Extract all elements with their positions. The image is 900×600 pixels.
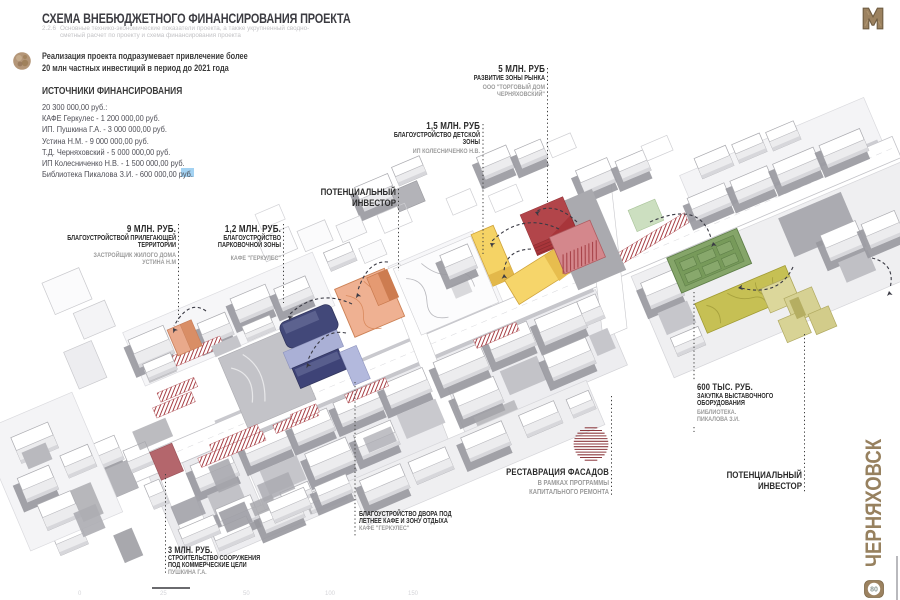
svg-text:ЧЕРНЯХОВСК: ЧЕРНЯХОВСК — [861, 439, 886, 567]
svg-text:80: 80 — [870, 587, 878, 594]
